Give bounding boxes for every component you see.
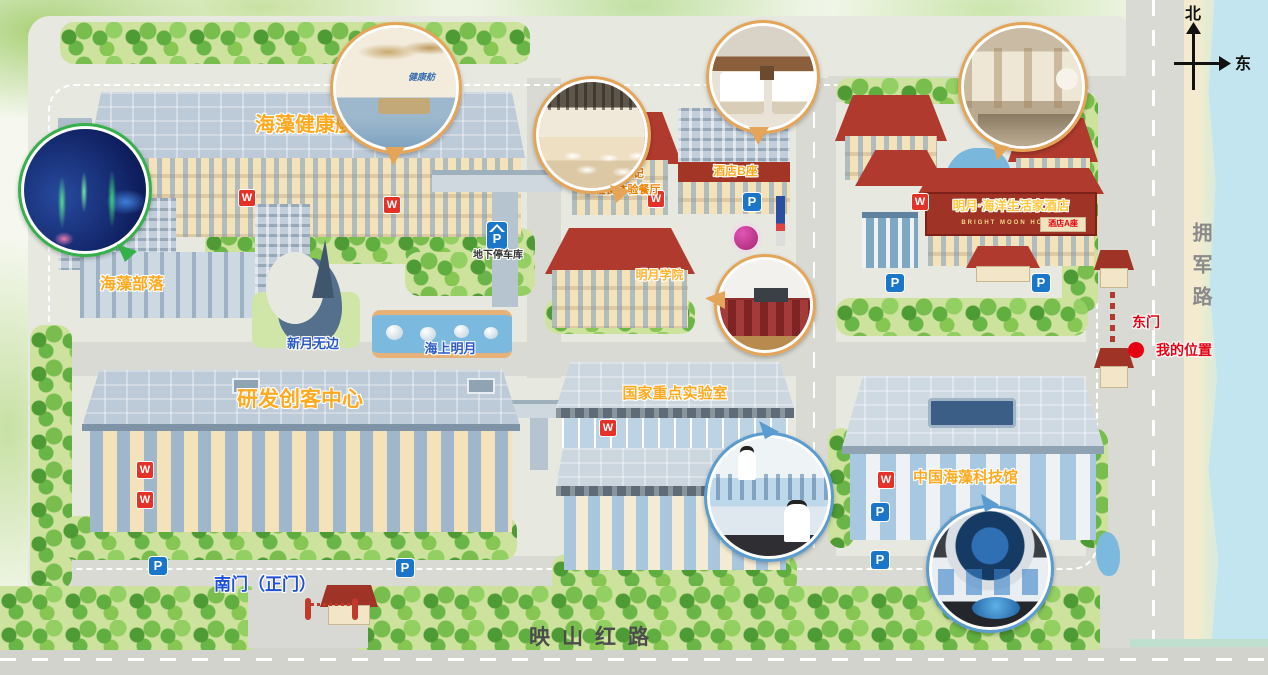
label-sea-moon: 海上明月 bbox=[398, 342, 503, 356]
floor-reflection bbox=[978, 114, 1078, 144]
callout-aquarium bbox=[18, 123, 152, 257]
photo-laboratory bbox=[710, 438, 828, 556]
hotela-porch bbox=[976, 266, 1030, 282]
parking-icon: P bbox=[886, 274, 904, 292]
sign-board bbox=[776, 196, 785, 246]
photo-lecture-hall bbox=[720, 260, 810, 350]
compass-n-arrowhead bbox=[1186, 22, 1201, 34]
bridge-tower bbox=[530, 418, 548, 470]
label-crescent: 新月无边 bbox=[258, 337, 368, 351]
toilet-icon: W bbox=[384, 197, 400, 213]
moon-sphere bbox=[484, 327, 498, 339]
label-hotel-b: 酒店B座 bbox=[688, 165, 783, 178]
parking-icon: P bbox=[1032, 274, 1050, 292]
round-window bbox=[1056, 68, 1078, 90]
campus-map: 海藻健康舫 W W 海藻部落 酒店B座 W 藻食记 轻食体验餐厅 明月学院 P … bbox=[0, 0, 1268, 675]
dormer bbox=[467, 378, 495, 394]
hotela-main-roof bbox=[918, 168, 1104, 194]
parking-icon: P bbox=[871, 551, 889, 569]
researcher bbox=[738, 450, 756, 480]
ceiling-slats bbox=[539, 82, 645, 110]
photo-hotel-room bbox=[712, 26, 814, 128]
facade bbox=[90, 431, 512, 532]
barrier-arm bbox=[311, 603, 352, 606]
toilet-icon: W bbox=[137, 462, 153, 478]
globe-table bbox=[972, 597, 1020, 619]
bed bbox=[720, 72, 764, 114]
eave bbox=[82, 424, 520, 431]
hotela-column-hall bbox=[862, 212, 918, 268]
moon-sphere bbox=[420, 327, 436, 341]
label-academy: 明月学院 bbox=[612, 269, 707, 282]
seat-rows bbox=[720, 300, 810, 336]
tables bbox=[553, 148, 643, 178]
skylight bbox=[928, 398, 1016, 428]
eave bbox=[842, 446, 1104, 454]
callout-lecture-hall bbox=[714, 254, 816, 356]
parking-icon: P bbox=[149, 557, 167, 575]
bench-bottles bbox=[716, 474, 828, 500]
photo-restaurant-interior bbox=[539, 82, 645, 188]
photo-health-pavilion-lobby: 健康舫 bbox=[336, 28, 456, 148]
label-seaweed-tribe: 海藻部落 bbox=[62, 276, 202, 294]
south-road-centerline bbox=[0, 658, 1268, 661]
branch-art bbox=[354, 36, 450, 70]
pavilion-sign-text: 健康舫 bbox=[408, 70, 435, 83]
seaweed-glow bbox=[34, 147, 144, 247]
hotela-block-roof bbox=[835, 95, 947, 141]
south-gatehouse bbox=[328, 605, 370, 625]
callout-health-pavilion: 健康舫 bbox=[330, 22, 462, 154]
label-maker-center: 研发创客中心 bbox=[130, 388, 470, 411]
reception-desk bbox=[378, 98, 430, 114]
toilet-icon: W bbox=[137, 492, 153, 508]
photo-science-dome bbox=[932, 511, 1048, 627]
hotela-porch-roof bbox=[966, 246, 1040, 268]
moon-sphere bbox=[386, 325, 403, 340]
label-south-gate: 南门（正门） bbox=[200, 576, 330, 595]
label-key-lab: 国家重点实验室 bbox=[560, 386, 790, 403]
east-gatehouse-roof bbox=[1094, 250, 1134, 270]
researcher bbox=[784, 504, 810, 542]
label-my-location: 我的位置 bbox=[1148, 343, 1220, 358]
callout-restaurant bbox=[533, 76, 651, 194]
label-east-gate: 东门 bbox=[1120, 315, 1172, 330]
callout-laboratory bbox=[704, 432, 834, 562]
compass: 北 东 bbox=[1168, 6, 1263, 101]
label-hotel-cn: 明月·海洋生活家酒店 bbox=[925, 200, 1097, 214]
toilet-icon: W bbox=[912, 194, 928, 210]
label-south-road: 映山红路 bbox=[495, 626, 695, 649]
hotelb-base bbox=[678, 182, 790, 214]
compass-n-arrow-line bbox=[1192, 32, 1195, 90]
band bbox=[556, 408, 794, 418]
east-gate-fence bbox=[1110, 292, 1115, 344]
tree-belt bbox=[60, 22, 530, 64]
east-gatehouse bbox=[1100, 366, 1128, 388]
photo-aquarium-exhibit bbox=[24, 129, 146, 251]
toilet-icon: W bbox=[600, 420, 616, 436]
east-gatehouse bbox=[1100, 268, 1128, 288]
photo-hotel-lobby bbox=[964, 28, 1082, 146]
my-location-dot bbox=[1128, 342, 1144, 358]
barrier-post bbox=[352, 598, 358, 620]
exhibit-screens bbox=[938, 569, 1048, 595]
screen bbox=[754, 288, 788, 302]
callout-hotel-lobby bbox=[958, 22, 1088, 152]
underground-parking-icon: P bbox=[487, 222, 507, 249]
compass-e-arrow-line bbox=[1174, 62, 1221, 65]
label-underground-parking: 地下停车库 bbox=[452, 250, 544, 261]
tree-belt bbox=[836, 298, 1088, 336]
sky-bridge bbox=[432, 170, 562, 192]
p-glyph: P bbox=[487, 231, 507, 246]
compass-east-label: 东 bbox=[1232, 56, 1254, 74]
bed bbox=[772, 72, 814, 114]
toilet-icon: W bbox=[878, 472, 894, 488]
compass-e-arrowhead bbox=[1219, 56, 1231, 71]
parking-icon: P bbox=[743, 193, 761, 211]
tree-belt bbox=[0, 586, 252, 650]
parking-icon: P bbox=[871, 503, 889, 521]
barrier-post bbox=[305, 598, 311, 620]
label-hotel-a: 酒店A座 bbox=[1040, 220, 1086, 229]
compass-north-label: 北 bbox=[1181, 6, 1205, 24]
moon-sphere bbox=[454, 325, 469, 338]
sphere-sculpture bbox=[734, 226, 758, 250]
nightstand bbox=[760, 66, 774, 80]
small-pond bbox=[1096, 532, 1120, 576]
label-east-road: 拥军路 bbox=[1186, 222, 1215, 318]
callout-science-dome bbox=[926, 505, 1054, 633]
callout-hotel-room bbox=[706, 20, 820, 134]
label-tech-museum: 中国海藻科技馆 bbox=[898, 470, 1033, 487]
parking-icon: P bbox=[396, 559, 414, 577]
